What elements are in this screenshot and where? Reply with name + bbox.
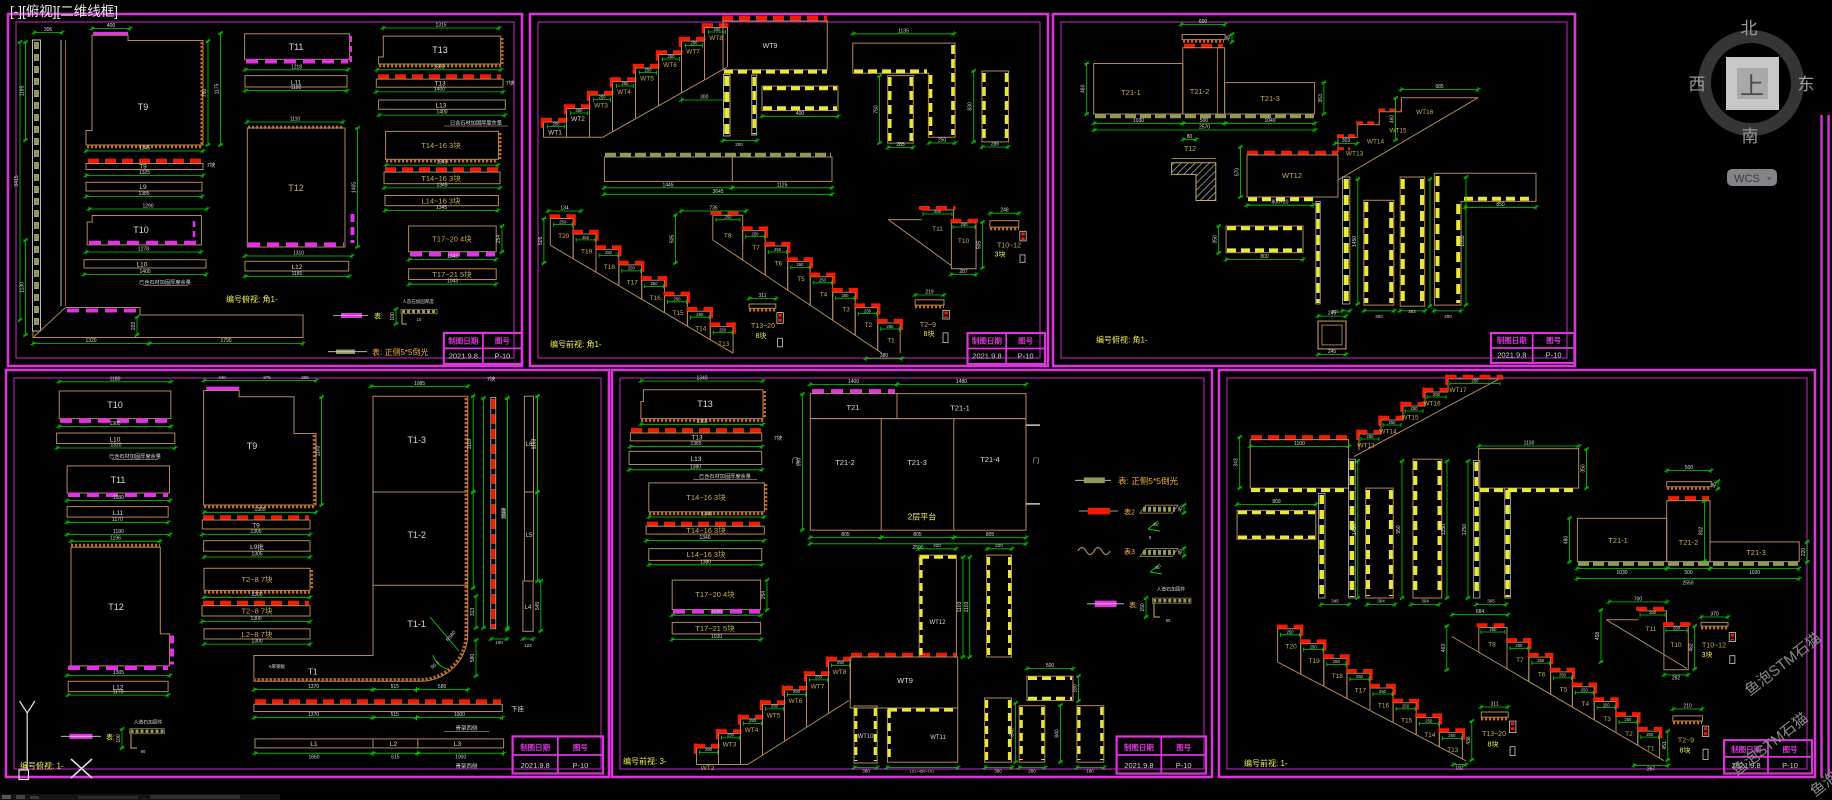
svg-text:500: 500 xyxy=(1200,118,1209,124)
svg-text:250: 250 xyxy=(553,121,561,126)
svg-text:363: 363 xyxy=(1318,94,1324,103)
svg-text:T1-1: T1-1 xyxy=(407,619,426,629)
svg-text:5厚钢板: 5厚钢板 xyxy=(269,663,286,670)
svg-text:451: 451 xyxy=(1662,741,1668,750)
svg-text:250: 250 xyxy=(719,327,727,332)
svg-text:T17: T17 xyxy=(627,279,639,286)
svg-text:1000: 1000 xyxy=(454,712,465,718)
svg-text:8块: 8块 xyxy=(924,329,935,338)
svg-text:8块: 8块 xyxy=(1488,740,1499,749)
svg-text:已含石材加固厚度余量: 已含石材加固厚度余量 xyxy=(109,452,161,460)
svg-text:T5: T5 xyxy=(1560,686,1568,693)
svg-text:图号: 图号 xyxy=(1176,743,1192,752)
svg-text:已含石材加固厚度余量: 已含石材加固厚度余量 xyxy=(699,472,751,480)
svg-text:8块: 8块 xyxy=(755,331,766,340)
svg-text:T14~16 3块: T14~16 3块 xyxy=(686,525,726,535)
svg-text:制图日期: 制图日期 xyxy=(1124,742,1154,752)
svg-text:1103: 1103 xyxy=(501,507,507,518)
svg-text:WT15: WT15 xyxy=(1401,415,1419,422)
svg-text:表:: 表: xyxy=(374,312,383,321)
svg-text:250: 250 xyxy=(1649,610,1657,615)
svg-text:580: 580 xyxy=(470,654,476,663)
svg-text:1180: 1180 xyxy=(110,376,121,382)
svg-text:1000: 1000 xyxy=(455,755,466,761)
svg-text:T13: T13 xyxy=(432,45,448,55)
svg-text:800+20: 800+20 xyxy=(1272,200,1289,206)
svg-text:375: 375 xyxy=(263,375,271,380)
svg-text:280: 280 xyxy=(1028,769,1036,774)
svg-text:380: 380 xyxy=(994,769,1002,774)
svg-text:T2: T2 xyxy=(865,322,873,329)
svg-text:WT2: WT2 xyxy=(571,116,585,123)
svg-text:205: 205 xyxy=(301,375,309,380)
svg-text:7块: 7块 xyxy=(207,161,216,169)
svg-text:3块: 3块 xyxy=(1702,650,1713,659)
svg-text:250: 250 xyxy=(714,27,722,32)
svg-text:45°: 45° xyxy=(1155,565,1162,570)
svg-text:1103: 1103 xyxy=(467,438,473,449)
svg-text:250: 250 xyxy=(582,235,590,240)
svg-text:1040: 1040 xyxy=(1264,118,1275,124)
svg-text:254: 254 xyxy=(761,591,767,600)
svg-text:3645: 3645 xyxy=(712,189,723,195)
svg-text:WT9: WT9 xyxy=(897,676,913,685)
svg-text:制图日期: 制图日期 xyxy=(520,742,550,752)
svg-text:1190: 1190 xyxy=(113,529,124,535)
svg-text:250: 250 xyxy=(752,231,760,236)
svg-text:250: 250 xyxy=(1624,717,1632,722)
svg-text:T3: T3 xyxy=(1603,716,1611,723)
svg-text:T1: T1 xyxy=(887,338,895,345)
svg-text:WT3: WT3 xyxy=(594,103,608,110)
svg-text:T7: T7 xyxy=(752,245,760,252)
svg-text:809: 809 xyxy=(1272,499,1281,505)
svg-text:100: 100 xyxy=(495,640,503,645)
svg-text:311: 311 xyxy=(759,293,767,299)
svg-text:T10~12: T10~12 xyxy=(1702,643,1726,650)
svg-text:T17~21 5块: T17~21 5块 xyxy=(432,269,472,279)
svg-text:T18: T18 xyxy=(604,264,616,271)
svg-text:T21-3: T21-3 xyxy=(1260,94,1280,103)
svg-text:250: 250 xyxy=(605,250,613,255)
svg-text:T10~12: T10~12 xyxy=(997,243,1021,250)
svg-text:1400: 1400 xyxy=(436,110,447,116)
svg-text:1250: 1250 xyxy=(1462,524,1468,535)
svg-text:482: 482 xyxy=(1689,643,1695,652)
svg-text:T21: T21 xyxy=(847,403,860,412)
svg-text:WT2: WT2 xyxy=(701,765,715,772)
svg-text:250: 250 xyxy=(691,40,699,45)
svg-text:1790: 1790 xyxy=(220,338,231,344)
svg-text:T1: T1 xyxy=(1647,746,1655,753)
svg-text:人造石加固件: 人造石加固件 xyxy=(1157,586,1186,593)
svg-text:100: 100 xyxy=(390,312,396,321)
svg-text:2550: 2550 xyxy=(1682,581,1693,587)
svg-text:L10: L10 xyxy=(137,261,148,268)
svg-text:250: 250 xyxy=(576,108,584,113)
svg-text:L2~8 7块: L2~8 7块 xyxy=(242,629,273,639)
svg-text:370: 370 xyxy=(1710,612,1719,618)
svg-text:250: 250 xyxy=(815,675,823,680)
svg-text:1103: 1103 xyxy=(532,438,538,449)
svg-text:45: 45 xyxy=(1712,482,1718,488)
svg-text:T13~20: T13~20 xyxy=(751,323,775,330)
svg-text:1196: 1196 xyxy=(110,536,121,542)
svg-text:T4: T4 xyxy=(820,291,828,298)
svg-text:570: 570 xyxy=(1235,168,1241,177)
svg-text:8块: 8块 xyxy=(1680,746,1691,755)
svg-text:250: 250 xyxy=(559,219,567,224)
svg-text:380: 380 xyxy=(880,353,889,359)
svg-text:T1-2: T1-2 xyxy=(408,530,427,540)
svg-text:T13: T13 xyxy=(1447,747,1459,754)
svg-text:T8: T8 xyxy=(724,233,732,240)
svg-text:▾: ▾ xyxy=(1767,174,1771,183)
svg-text:WT6: WT6 xyxy=(789,698,803,705)
svg-text:750: 750 xyxy=(874,105,880,114)
svg-text:WT14: WT14 xyxy=(1367,139,1385,146)
svg-text:480: 480 xyxy=(1564,536,1570,545)
svg-text:WT8: WT8 xyxy=(833,669,847,676)
svg-text:250: 250 xyxy=(1411,406,1419,411)
svg-text:200: 200 xyxy=(735,142,743,147)
svg-text:303: 303 xyxy=(1342,138,1351,144)
svg-text:250: 250 xyxy=(793,689,801,694)
svg-text:250: 250 xyxy=(1472,378,1480,383)
svg-text:122: 122 xyxy=(524,643,532,648)
svg-text:西: 西 xyxy=(1689,75,1706,94)
svg-text:编号俯视: 角1-: 编号俯视: 角1- xyxy=(226,294,278,304)
svg-text:表:: 表: xyxy=(106,733,115,742)
svg-text:T5: T5 xyxy=(797,276,805,283)
svg-text:编号前视: 角1-: 编号前视: 角1- xyxy=(550,339,602,349)
svg-text:1450: 1450 xyxy=(1352,236,1358,247)
svg-text:T14: T14 xyxy=(1424,732,1436,739)
svg-text:304: 304 xyxy=(1377,599,1385,604)
svg-text:1020: 1020 xyxy=(711,610,722,616)
svg-text:2570: 2570 xyxy=(1199,125,1210,131)
svg-text:WT5: WT5 xyxy=(640,76,654,83)
svg-text:T21-2: T21-2 xyxy=(1190,87,1210,96)
svg-text:250: 250 xyxy=(1333,659,1341,664)
svg-text:850: 850 xyxy=(1496,202,1505,208)
svg-text:1445: 1445 xyxy=(662,182,673,188)
svg-text:1180: 1180 xyxy=(113,495,124,501)
svg-text:400: 400 xyxy=(796,111,805,117)
svg-text:1305: 1305 xyxy=(250,529,261,535)
svg-text:250: 250 xyxy=(1379,689,1387,694)
svg-text:T21-1: T21-1 xyxy=(1121,88,1141,97)
svg-text:250: 250 xyxy=(1433,392,1441,397)
svg-text:220: 220 xyxy=(1801,548,1807,557)
svg-text:134: 134 xyxy=(560,206,569,212)
svg-text:WT4: WT4 xyxy=(745,727,759,734)
svg-text:T21-3: T21-3 xyxy=(907,458,927,467)
svg-text:T10: T10 xyxy=(133,225,149,235)
svg-text:245: 245 xyxy=(1328,349,1337,355)
svg-text:1345: 1345 xyxy=(436,160,447,166)
svg-text:250: 250 xyxy=(887,324,895,329)
svg-text:830: 830 xyxy=(968,102,974,111)
svg-text:2021.9.8: 2021.9.8 xyxy=(1497,351,1526,360)
svg-text:250: 250 xyxy=(938,138,947,144)
svg-text:L13: L13 xyxy=(436,102,447,109)
svg-text:1400: 1400 xyxy=(434,86,445,92)
svg-text:P-10: P-10 xyxy=(494,351,510,360)
svg-text:285: 285 xyxy=(991,142,1000,148)
svg-text:1370: 1370 xyxy=(308,684,319,690)
svg-text:1218: 1218 xyxy=(291,64,302,70)
svg-text:P-10: P-10 xyxy=(1018,352,1034,361)
svg-text:T11: T11 xyxy=(1646,626,1657,633)
svg-text:L2: L2 xyxy=(390,741,398,748)
svg-text:950: 950 xyxy=(1396,525,1402,534)
svg-text:285: 285 xyxy=(896,142,905,148)
svg-text:1050: 1050 xyxy=(1460,235,1466,246)
svg-text:1030: 1030 xyxy=(1616,570,1627,576)
svg-text:T2: T2 xyxy=(1625,731,1633,738)
svg-text:101+450+101: 101+450+101 xyxy=(910,769,935,774)
svg-text:180: 180 xyxy=(1086,769,1094,774)
svg-text:图号: 图号 xyxy=(1783,745,1799,754)
svg-text:1020: 1020 xyxy=(1749,570,1760,576)
svg-text:80: 80 xyxy=(1187,134,1193,140)
svg-text:735: 735 xyxy=(709,206,718,212)
svg-text:463: 463 xyxy=(1441,644,1447,653)
svg-text:T19: T19 xyxy=(581,248,593,255)
svg-text:282: 282 xyxy=(1672,676,1681,682)
svg-text:1180: 1180 xyxy=(292,271,303,277)
svg-text:250: 250 xyxy=(819,278,827,283)
svg-text:1135: 1135 xyxy=(898,28,909,34)
svg-text:805: 805 xyxy=(913,532,922,538)
svg-text:WT17: WT17 xyxy=(1449,387,1467,394)
svg-text:T16: T16 xyxy=(649,295,661,302)
svg-text:250: 250 xyxy=(696,312,704,317)
svg-text:T21-1: T21-1 xyxy=(950,404,970,413)
svg-text:T17: T17 xyxy=(1355,688,1367,695)
svg-text:250: 250 xyxy=(668,54,676,59)
svg-text:840: 840 xyxy=(1055,729,1061,738)
svg-text:编号俯视: 角1-: 编号俯视: 角1- xyxy=(1096,335,1148,345)
svg-text:700: 700 xyxy=(1634,596,1643,602)
svg-text:T13~20: T13~20 xyxy=(1482,731,1506,738)
svg-text:2021.9.8: 2021.9.8 xyxy=(972,352,1001,361)
svg-text:WT12: WT12 xyxy=(1282,171,1302,180)
svg-text:7块: 7块 xyxy=(774,434,783,442)
svg-text:1305: 1305 xyxy=(254,507,265,513)
svg-text:1043: 1043 xyxy=(447,254,458,260)
svg-text:805: 805 xyxy=(841,532,850,538)
svg-text:1130: 1130 xyxy=(20,282,26,293)
svg-text:T20: T20 xyxy=(558,233,570,240)
svg-text:250: 250 xyxy=(674,297,682,302)
svg-text:T11: T11 xyxy=(111,475,126,485)
svg-text:骨架西侧: 骨架西侧 xyxy=(455,762,478,770)
svg-text:300: 300 xyxy=(1375,314,1383,319)
svg-text:WCS: WCS xyxy=(1734,173,1760,185)
svg-text:T14~16 3块: T14~16 3块 xyxy=(421,140,461,150)
svg-text:505: 505 xyxy=(538,236,544,245)
svg-text:7块: 7块 xyxy=(506,79,515,87)
svg-text:T21-3: T21-3 xyxy=(1746,548,1766,557)
svg-text:编号前视: 1-: 编号前视: 1- xyxy=(1244,758,1288,768)
svg-text:L14~16 3块: L14~16 3块 xyxy=(687,549,726,559)
svg-text:WT14: WT14 xyxy=(1379,429,1397,436)
svg-text:1370: 1370 xyxy=(308,712,319,718)
svg-text:T1-3: T1-3 xyxy=(408,435,427,445)
svg-text:1300: 1300 xyxy=(433,64,444,70)
svg-text:203: 203 xyxy=(131,322,137,331)
svg-text:T14: T14 xyxy=(695,326,707,333)
svg-text:1300: 1300 xyxy=(251,592,262,598)
svg-text:250: 250 xyxy=(651,281,659,286)
svg-text:南: 南 xyxy=(1742,127,1759,146)
svg-text:1305: 1305 xyxy=(109,421,120,427)
svg-text:制图日期: 制图日期 xyxy=(972,336,1002,346)
svg-text:267: 267 xyxy=(1647,767,1656,773)
svg-text:800: 800 xyxy=(1260,254,1269,260)
svg-text:2021.9.8: 2021.9.8 xyxy=(449,351,478,360)
svg-text:515: 515 xyxy=(391,712,400,718)
svg-text:600: 600 xyxy=(1199,19,1208,25)
svg-text:1180: 1180 xyxy=(291,85,302,91)
svg-text:T8: T8 xyxy=(1488,642,1496,649)
svg-text:T13: T13 xyxy=(697,399,713,409)
svg-text:2021.9.8: 2021.9.8 xyxy=(521,761,550,770)
svg-text:45: 45 xyxy=(1178,506,1184,512)
svg-text:250: 250 xyxy=(1448,733,1456,738)
svg-text:180: 180 xyxy=(1073,684,1079,693)
svg-text:1660: 1660 xyxy=(308,755,319,761)
svg-text:L14~16 3块: L14~16 3块 xyxy=(422,196,461,206)
svg-text:2500: 2500 xyxy=(912,545,923,551)
svg-text:150: 150 xyxy=(1140,603,1146,612)
svg-text:T21-1: T21-1 xyxy=(1608,536,1628,545)
svg-text:图号: 图号 xyxy=(495,336,510,345)
svg-text:1020: 1020 xyxy=(711,634,722,640)
svg-text:WT5: WT5 xyxy=(767,712,781,719)
svg-text:1320: 1320 xyxy=(85,338,96,344)
svg-text:313: 313 xyxy=(470,608,476,617)
svg-text:1480: 1480 xyxy=(956,379,967,385)
svg-text:250: 250 xyxy=(1287,630,1295,635)
svg-text:1130: 1130 xyxy=(1524,441,1535,447)
svg-text:250: 250 xyxy=(628,266,636,271)
svg-text:1465: 1465 xyxy=(352,182,358,193)
svg-text:[-][俯视][二维线框]: [-][俯视][二维线框] xyxy=(10,4,118,19)
svg-text:骨架西侧: 骨架西侧 xyxy=(455,724,478,732)
svg-text:1278: 1278 xyxy=(138,247,149,253)
svg-text:P-10: P-10 xyxy=(1176,761,1192,770)
svg-text:250: 250 xyxy=(837,660,845,665)
svg-text:T11: T11 xyxy=(932,226,943,233)
svg-text:505: 505 xyxy=(976,241,982,250)
svg-text:250: 250 xyxy=(1356,674,1364,679)
svg-text:250: 250 xyxy=(1389,420,1397,425)
svg-text:T21-2: T21-2 xyxy=(1679,538,1699,547)
svg-text:1325: 1325 xyxy=(139,170,150,176)
svg-text:T10: T10 xyxy=(107,400,123,410)
svg-text:T21-2: T21-2 xyxy=(835,458,855,467)
svg-text:250: 250 xyxy=(622,81,630,86)
svg-text:1175: 1175 xyxy=(215,83,221,94)
svg-text:2层平台: 2层平台 xyxy=(908,512,936,522)
svg-text:T14~16 3块: T14~16 3块 xyxy=(686,492,726,502)
svg-text:302: 302 xyxy=(1408,309,1416,314)
svg-text:305: 305 xyxy=(1487,599,1495,604)
svg-text:T9: T9 xyxy=(138,102,149,112)
svg-text:100: 100 xyxy=(116,734,122,743)
svg-text:T17~21 5块: T17~21 5块 xyxy=(695,623,735,633)
svg-text:436: 436 xyxy=(1466,736,1472,745)
svg-text:311: 311 xyxy=(1491,702,1499,708)
svg-text:WT6: WT6 xyxy=(663,62,677,69)
svg-text:WT15: WT15 xyxy=(1389,128,1407,135)
svg-text:T3: T3 xyxy=(842,307,850,314)
svg-text:T12: T12 xyxy=(1184,146,1196,153)
svg-text:图号: 图号 xyxy=(1018,337,1033,346)
svg-text:1365: 1365 xyxy=(696,419,707,425)
svg-text:250: 250 xyxy=(1581,688,1589,693)
svg-text:T2~8 7块: T2~8 7块 xyxy=(241,574,273,584)
svg-text:250: 250 xyxy=(1425,718,1433,723)
svg-text:2021.9.8: 2021.9.8 xyxy=(1124,761,1153,770)
svg-text:250: 250 xyxy=(961,222,969,227)
svg-text:1300: 1300 xyxy=(250,616,261,622)
svg-text:T20: T20 xyxy=(1285,643,1297,650)
svg-text:WT9: WT9 xyxy=(763,43,778,50)
svg-text:东: 东 xyxy=(1798,75,1815,94)
svg-text:990: 990 xyxy=(796,458,802,467)
svg-text:250: 250 xyxy=(771,704,779,709)
svg-text:1340: 1340 xyxy=(696,376,707,382)
svg-text:500: 500 xyxy=(1685,465,1694,471)
svg-text:350: 350 xyxy=(1213,235,1219,244)
svg-text:L9批: L9批 xyxy=(250,542,264,551)
svg-text:T4: T4 xyxy=(1582,701,1590,708)
svg-text:P-10: P-10 xyxy=(572,761,588,770)
svg-text:254: 254 xyxy=(496,235,502,244)
svg-text:10: 10 xyxy=(417,317,422,322)
svg-text:T2~9: T2~9 xyxy=(1678,738,1694,745)
svg-text:T15: T15 xyxy=(1401,717,1413,724)
svg-text:440: 440 xyxy=(218,375,226,380)
svg-text:500: 500 xyxy=(1684,570,1693,576)
svg-text:287: 287 xyxy=(959,269,968,275)
svg-text:1103: 1103 xyxy=(316,445,322,456)
svg-text:T6: T6 xyxy=(775,261,783,268)
svg-text:1030: 1030 xyxy=(1133,118,1144,124)
svg-text:图号: 图号 xyxy=(573,743,588,752)
svg-text:250: 250 xyxy=(645,67,653,72)
svg-text:1385: 1385 xyxy=(138,191,149,197)
svg-text:345: 345 xyxy=(1331,599,1339,604)
svg-text:北: 北 xyxy=(1741,19,1758,38)
svg-text:WT16: WT16 xyxy=(1416,109,1434,116)
svg-text:1345: 1345 xyxy=(436,205,447,211)
svg-text:P-10: P-10 xyxy=(1546,351,1562,360)
svg-text:219: 219 xyxy=(925,290,934,296)
svg-text:编号前视: 3-: 编号前视: 3- xyxy=(623,756,667,766)
svg-text:545: 545 xyxy=(535,602,541,611)
svg-text:T1: T1 xyxy=(308,668,318,677)
svg-text:WT1: WT1 xyxy=(548,130,562,137)
svg-text:45: 45 xyxy=(1226,35,1232,41)
svg-text:T17~20 4块: T17~20 4块 xyxy=(695,589,735,599)
svg-text:250: 250 xyxy=(1402,704,1410,709)
svg-text:304: 304 xyxy=(1421,599,1429,604)
